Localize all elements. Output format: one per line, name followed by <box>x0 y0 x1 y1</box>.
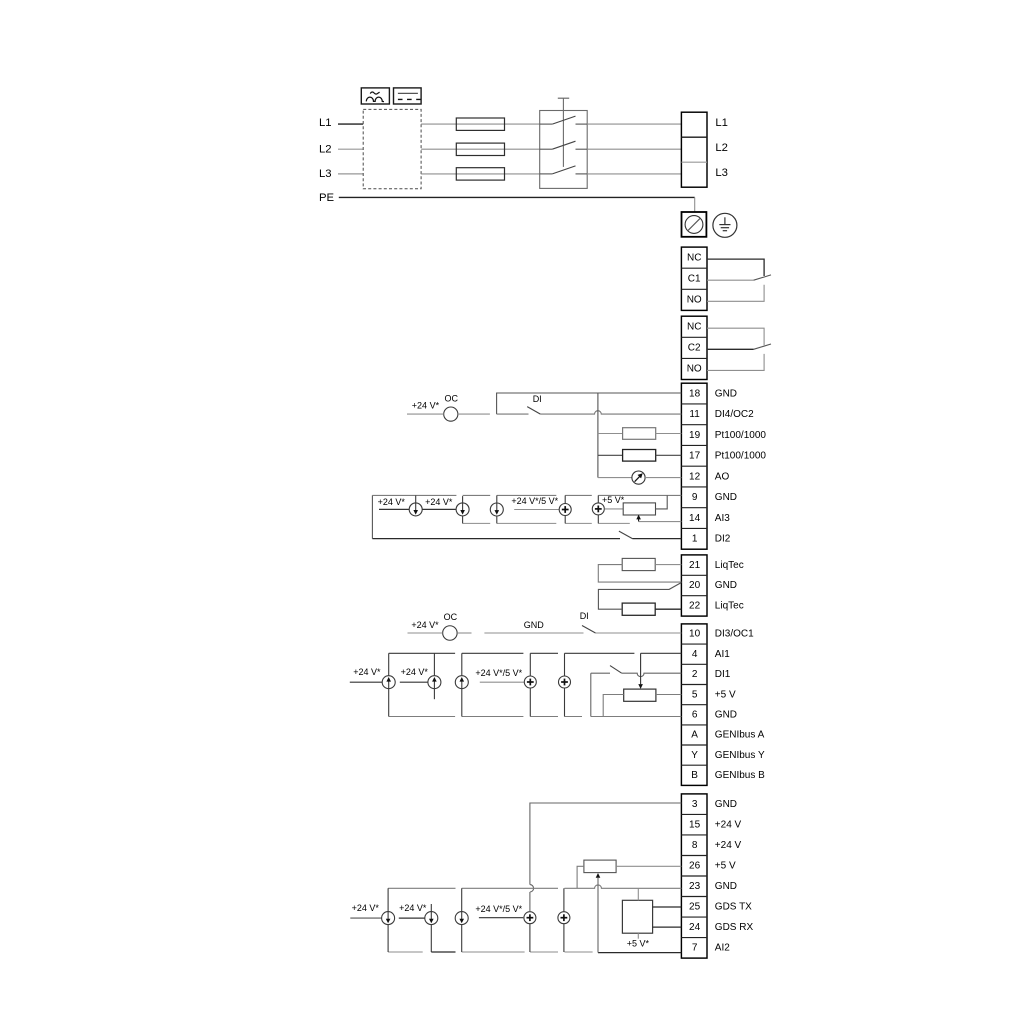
svg-text:GDS TX: GDS TX <box>715 902 752 913</box>
svg-text:GENIbus A: GENIbus A <box>715 730 765 741</box>
svg-text:20: 20 <box>689 580 701 591</box>
svg-text:9: 9 <box>692 492 698 503</box>
svg-text:GND: GND <box>524 620 545 630</box>
svg-text:+24 V*: +24 V* <box>378 497 406 507</box>
svg-text:6: 6 <box>692 710 698 721</box>
svg-text:DI3/OC1: DI3/OC1 <box>715 629 754 640</box>
svg-text:+5 V*: +5 V* <box>602 495 625 505</box>
svg-text:8: 8 <box>692 840 698 851</box>
svg-text:+5 V*: +5 V* <box>627 939 650 949</box>
svg-text:+24 V*: +24 V* <box>401 667 429 677</box>
svg-text:+24 V*: +24 V* <box>352 903 380 913</box>
svg-text:+24 V*: +24 V* <box>425 497 453 507</box>
svg-text:23: 23 <box>689 881 701 892</box>
svg-text:19: 19 <box>689 430 701 441</box>
svg-text:PE: PE <box>319 192 335 204</box>
svg-text:AI2: AI2 <box>715 943 730 954</box>
svg-text:DI: DI <box>580 611 589 621</box>
svg-text:NO: NO <box>687 295 702 306</box>
svg-text:+24 V*: +24 V* <box>399 903 427 913</box>
svg-text:+24 V*: +24 V* <box>412 400 440 410</box>
svg-text:+24 V: +24 V <box>715 840 742 851</box>
svg-text:L1: L1 <box>715 117 728 129</box>
svg-text:B: B <box>691 770 698 781</box>
svg-text:OC: OC <box>444 612 458 622</box>
svg-text:22: 22 <box>689 601 701 612</box>
svg-text:+5 V: +5 V <box>715 689 736 700</box>
svg-text:3: 3 <box>692 799 698 810</box>
svg-text:DI: DI <box>533 394 542 404</box>
svg-text:L1: L1 <box>319 117 332 129</box>
svg-text:DI2: DI2 <box>715 534 731 545</box>
svg-text:GENIbus B: GENIbus B <box>715 770 765 781</box>
svg-text:C2: C2 <box>688 343 701 354</box>
svg-text:+24 V*/5 V*: +24 V*/5 V* <box>511 496 558 506</box>
svg-text:GND: GND <box>715 492 737 503</box>
svg-text:17: 17 <box>689 451 701 462</box>
svg-text:GND: GND <box>715 881 737 892</box>
svg-text:+24 V*/5 V*: +24 V*/5 V* <box>475 904 522 914</box>
svg-text:LiqTec: LiqTec <box>715 601 744 612</box>
svg-text:NO: NO <box>687 364 702 375</box>
svg-text:GDS RX: GDS RX <box>715 922 754 933</box>
svg-text:7: 7 <box>692 943 698 954</box>
svg-text:GND: GND <box>715 388 737 399</box>
svg-text:C1: C1 <box>688 274 701 285</box>
svg-text:DI1: DI1 <box>715 669 731 680</box>
svg-text:Pt100/1000: Pt100/1000 <box>715 430 767 441</box>
svg-text:A: A <box>691 730 698 741</box>
svg-text:DI4/OC2: DI4/OC2 <box>715 409 754 420</box>
svg-text:15: 15 <box>689 819 701 830</box>
svg-text:LiqTec: LiqTec <box>715 560 744 571</box>
svg-text:AI3: AI3 <box>715 513 730 524</box>
svg-text:+5 V: +5 V <box>715 860 736 871</box>
svg-text:18: 18 <box>689 388 701 399</box>
svg-text:L3: L3 <box>319 168 332 180</box>
svg-text:24: 24 <box>689 922 701 933</box>
svg-text:Pt100/1000: Pt100/1000 <box>715 451 767 462</box>
svg-text:GND: GND <box>715 799 737 810</box>
svg-text:AI1: AI1 <box>715 649 730 660</box>
svg-text:14: 14 <box>689 513 701 524</box>
svg-text:AO: AO <box>715 471 730 482</box>
svg-text:L2: L2 <box>715 142 728 154</box>
svg-text:2: 2 <box>692 669 698 680</box>
svg-text:1: 1 <box>692 534 698 545</box>
svg-text:OC: OC <box>445 393 459 403</box>
svg-text:25: 25 <box>689 902 701 913</box>
svg-text:+24 V*: +24 V* <box>411 620 439 630</box>
svg-text:5: 5 <box>692 689 698 700</box>
svg-text:L2: L2 <box>319 144 332 156</box>
svg-text:10: 10 <box>689 629 701 640</box>
svg-text:GND: GND <box>715 710 737 721</box>
svg-text:26: 26 <box>689 860 701 871</box>
svg-text:4: 4 <box>692 649 698 660</box>
svg-text:GND: GND <box>715 580 737 591</box>
svg-text:12: 12 <box>689 471 701 482</box>
svg-text:GENIbus Y: GENIbus Y <box>715 750 765 761</box>
svg-text:11: 11 <box>689 409 700 420</box>
svg-text:L3: L3 <box>715 167 728 179</box>
svg-text:NC: NC <box>687 252 701 263</box>
svg-text:+24 V: +24 V <box>715 819 742 830</box>
svg-text:+24 V*/5 V*: +24 V*/5 V* <box>475 668 522 678</box>
svg-text:+24 V*: +24 V* <box>353 667 381 677</box>
svg-text:Y: Y <box>691 750 698 761</box>
svg-text:NC: NC <box>687 322 701 333</box>
svg-text:21: 21 <box>689 560 701 571</box>
